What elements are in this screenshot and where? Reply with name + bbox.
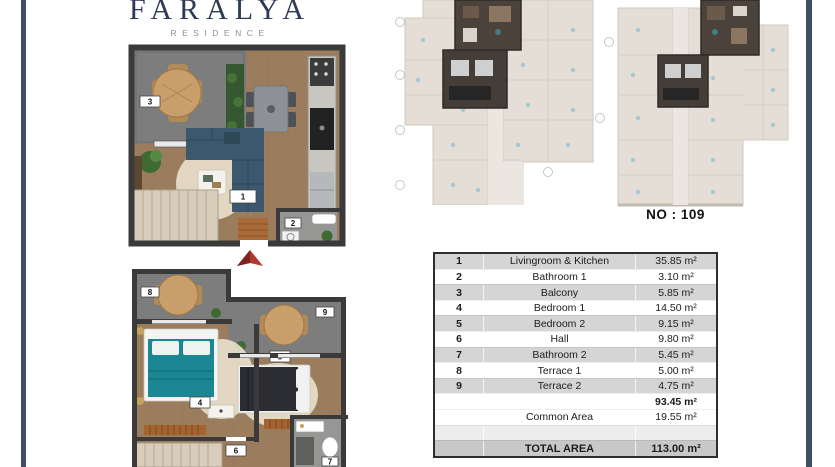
room-name: Bathroom 1 [484, 270, 636, 285]
bathroom-2-label: 7 [328, 458, 333, 467]
room-name: Terrace 2 [484, 379, 636, 394]
blank-row [435, 425, 716, 441]
bed-2 [238, 365, 310, 413]
stairs [134, 190, 218, 244]
bathroom-2-area: 7 [290, 415, 348, 467]
room-number: 4 [435, 301, 484, 316]
room-area: 5.45 m² [636, 348, 716, 363]
cooktop [310, 58, 334, 86]
terrace-1-area: 8 [136, 271, 228, 322]
logo-title: FARALYA [110, 0, 330, 27]
table-row: 6 Hall 9.80 m² [435, 331, 716, 347]
table-row: 7 Bathroom 2 5.45 m² [435, 347, 716, 363]
total-area-value: 113.00 m² [636, 441, 716, 456]
balcony-label: 3 [148, 98, 153, 107]
common-area-value: 19.55 m² [636, 410, 716, 425]
room-name: Terrace 1 [484, 363, 636, 378]
terrace-2-area: 9 [228, 297, 346, 355]
grid-marker [605, 38, 614, 47]
room-number [435, 410, 484, 425]
room-name: Balcony [484, 285, 636, 300]
room-name [484, 394, 636, 409]
bath-plant [322, 231, 333, 242]
radiator [144, 425, 206, 435]
table-row: 1 Livingroom & Kitchen 35.85 m² [435, 254, 716, 269]
total-area-label: TOTAL AREA [484, 441, 636, 456]
unit-number: NO : 109 [633, 207, 718, 222]
kitchen-counter [308, 56, 336, 210]
nightstand-plant [136, 397, 144, 405]
doormat [238, 218, 268, 241]
logo: FARALYA RESIDENCE [110, 0, 330, 38]
living-room-label: 1 [241, 193, 246, 202]
table-row: 4 Bedroom 1 14.50 m² [435, 300, 716, 316]
common-area-row: Common Area 19.55 m² [435, 409, 716, 425]
building-overview-right [603, 0, 793, 213]
table-row: 9 Terrace 2 4.75 m² [435, 378, 716, 394]
logo-subtitle: RESIDENCE [110, 28, 330, 38]
room-name: Bedroom 1 [484, 301, 636, 316]
room-number: 9 [435, 379, 484, 394]
common-area-label: Common Area [484, 410, 636, 425]
room-area: 35.85 m² [636, 254, 716, 269]
bedroom-1-label: 4 [198, 399, 203, 408]
table-row: 2 Bathroom 1 3.10 m² [435, 269, 716, 285]
table-row: 3 Balcony 5.85 m² [435, 284, 716, 300]
table-row: 5 Bedroom 2 9.15 m² [435, 315, 716, 331]
nightstand-plant [136, 327, 144, 335]
building-overview-left [393, 0, 608, 210]
room-area: 9.80 m² [636, 332, 716, 347]
hall-label: 6 [234, 447, 239, 456]
upper-floor-plan: 3 [128, 44, 358, 255]
room-number: 1 [435, 254, 484, 269]
room-number: 5 [435, 316, 484, 331]
lower-floor-plan: 8 9 [128, 267, 358, 467]
room-number: 6 [435, 332, 484, 347]
room-name: Hall [484, 332, 636, 347]
room-number: 8 [435, 363, 484, 378]
frame-right-border [806, 0, 812, 467]
room-name: Bathroom 2 [484, 348, 636, 363]
room-number [435, 394, 484, 409]
dresser [208, 405, 234, 418]
room-name: Bedroom 2 [484, 316, 636, 331]
room-number: 3 [435, 285, 484, 300]
bed-1 [144, 329, 218, 401]
total-row: TOTAL AREA 113.00 m² [435, 440, 716, 456]
sink [312, 214, 336, 224]
room-number: 2 [435, 270, 484, 285]
room-area: 4.75 m² [636, 379, 716, 394]
subtotal-row: 93.45 m² [435, 393, 716, 409]
bathroom-1-label: 2 [291, 219, 296, 228]
room-name: Livingroom & Kitchen [484, 254, 636, 269]
room-number: 7 [435, 348, 484, 363]
room-area: 3.10 m² [636, 270, 716, 285]
stairs [136, 443, 222, 467]
frame-left-border [21, 0, 26, 467]
room-area: 5.00 m² [636, 363, 716, 378]
brochure-page: FARALYA RESIDENCE [0, 0, 835, 467]
entry-door-gap [240, 240, 268, 248]
room-area: 9.15 m² [636, 316, 716, 331]
shower [296, 437, 314, 465]
subtotal-area: 93.45 m² [636, 394, 716, 409]
room-area: 5.85 m² [636, 285, 716, 300]
toilet [322, 437, 338, 457]
bathroom-1-area: 2 [276, 208, 340, 244]
area-table: 1 Livingroom & Kitchen 35.85 m² 2 Bathro… [433, 252, 718, 458]
terrace-1-label: 8 [148, 288, 153, 297]
terrace-2-label: 9 [323, 308, 328, 317]
table-row: 8 Terrace 1 5.00 m² [435, 362, 716, 378]
room-area: 14.50 m² [636, 301, 716, 316]
